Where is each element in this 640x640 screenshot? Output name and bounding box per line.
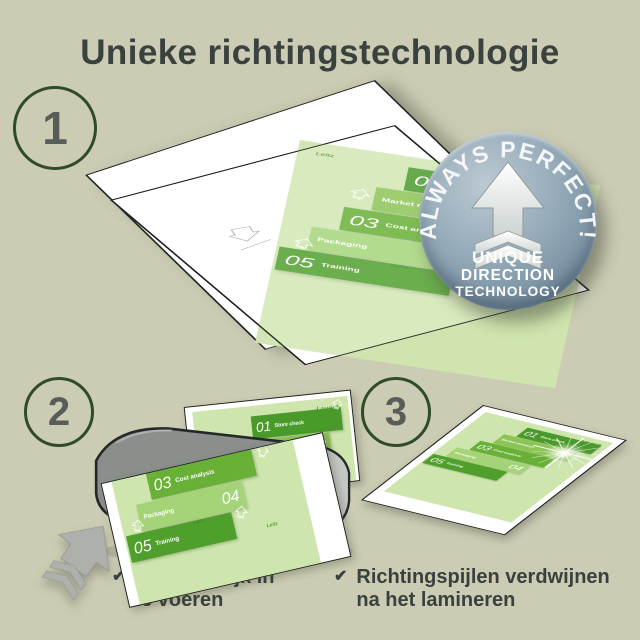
step-3-number: 3 xyxy=(385,390,407,435)
step-2-number: 2 xyxy=(48,390,70,435)
caption-text: Richtingspijlen verdwijnen na het lamine… xyxy=(356,566,609,612)
section-label: Packaging xyxy=(317,237,368,250)
section-label: Training xyxy=(445,462,464,468)
up-arrow-icon xyxy=(472,162,544,236)
section-label: Training xyxy=(155,535,180,547)
badge-line-3: TECHNOLOGY xyxy=(455,284,560,299)
check-icon: ✔ xyxy=(334,566,347,612)
badge-line-1: UNIQUE xyxy=(472,248,544,267)
infographic-stage: Unieke richtingstechnologie 1 Launch01St… xyxy=(0,0,640,640)
always-perfect-badge: ALWAYS PERFECT! UNIQUE DIRECTION TECHNOL… xyxy=(419,132,597,310)
section-label: Packaging xyxy=(453,452,477,459)
step-1-number: 1 xyxy=(42,101,68,155)
section-number: 05 xyxy=(282,248,316,275)
section-number: 03 xyxy=(347,208,381,235)
section-label: Training xyxy=(320,262,360,274)
direction-arrow-icon xyxy=(233,504,249,523)
brand-watermark: Leitz xyxy=(266,521,278,529)
section-number: 05 xyxy=(426,455,450,467)
section-number: 03 xyxy=(151,468,175,499)
section-number: 05 xyxy=(131,531,155,562)
step-3-circle: 3 xyxy=(361,377,431,447)
direction-arrow-icon xyxy=(344,186,375,205)
caption-arrows-disappear: ✔ Richtingspijlen verdwijnen na het lami… xyxy=(334,566,610,612)
caption-line: na het lamineren xyxy=(356,589,609,612)
section-label: Packaging xyxy=(143,507,175,521)
page-title: Unieke richtingstechnologie xyxy=(0,33,640,73)
section-label: Cost analysis xyxy=(175,468,215,484)
badge-line-2: DIRECTION xyxy=(461,267,555,284)
step-1-circle: 1 xyxy=(13,86,97,170)
brand-watermark: Leitz xyxy=(315,151,334,158)
caption-line: Richtingspijlen verdwijnen xyxy=(356,566,609,589)
